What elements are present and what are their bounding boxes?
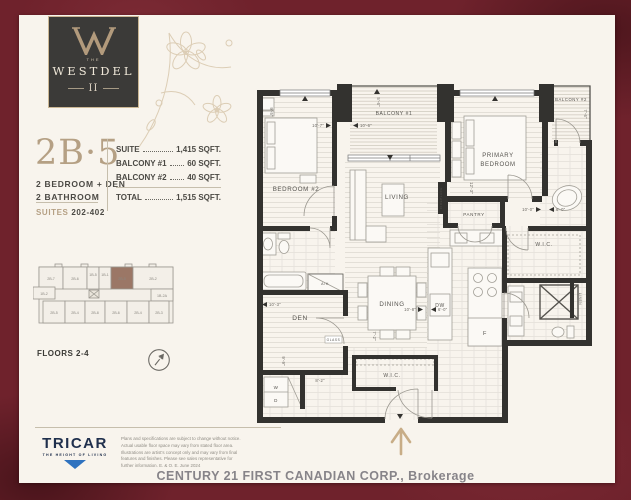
page-background: THE WESTDEL II 2B·5 2 BEDROOM + DEN 2 BA…: [19, 15, 615, 483]
unit-type-line1: 2 BEDROOM + DEN: [36, 178, 126, 191]
sofa: [350, 170, 366, 240]
room-label-wic-entry: W.I.C.: [383, 373, 400, 379]
keyplan-unit-label: 1B-5: [89, 273, 97, 277]
room-label-wic-primary: W.I.C.: [535, 242, 552, 248]
room-label-den: DEN: [292, 315, 308, 322]
room-label-linen: LINEN: [578, 293, 582, 305]
label-dryer: D: [274, 398, 278, 403]
room-label-air-handler: A/H: [321, 282, 329, 286]
toilet-ensuite: [552, 327, 564, 337]
room-label-dining: DINING: [379, 301, 404, 308]
keyplan-unit-label: 2B-3: [155, 311, 163, 315]
spec-value: 40 SQFT.: [187, 173, 221, 182]
dim-bedroom2-h: 9'-5": [269, 107, 274, 117]
label-fridge: F: [483, 331, 487, 337]
keyplan-unit-label: 2B-7: [47, 277, 55, 281]
label-washer: W: [274, 385, 279, 390]
dim-pantry-h: 12'-3": [469, 182, 474, 194]
entry-arrow-icon: [392, 429, 410, 454]
keyplan-unit-label: 2B-8: [91, 311, 99, 315]
logo-the: THE: [87, 57, 101, 62]
logo-numeral-row: II: [68, 83, 120, 94]
suites-range: SUITES 202-402: [36, 208, 105, 217]
dim-dining-w2: 6'-0": [438, 307, 448, 312]
toilet-bath2: [279, 241, 289, 254]
floor-plan: BEDROOM #2 BALCONY #1 LIVING PRIMARY BED…: [240, 78, 616, 468]
room-label-living: LIVING: [385, 194, 409, 201]
room-label-balcony1: BALCONY #1: [376, 111, 413, 117]
keyplan-unit-label: 2B-4: [134, 311, 142, 315]
keyplan-unit-label: 2B-4: [71, 311, 79, 315]
spec-value: 1,415 SQFT.: [176, 145, 221, 154]
room-label-fireplace: FIREPLACE: [439, 187, 443, 209]
dim-wic2-h: 7'-2": [372, 331, 377, 341]
tricar-logo: TRICAR THE HEIGHT OF LIVING: [35, 435, 115, 469]
floors-label: FLOORS 2-4: [37, 349, 89, 358]
suite-specs: SUITE 1,415 SQFT. BALCONY #1 60 SQFT. BA…: [116, 145, 221, 207]
tricar-triangle-icon: [64, 460, 86, 469]
suites-label: SUITES: [36, 208, 69, 217]
logo-numeral: II: [89, 83, 99, 94]
compass-icon: N: [146, 347, 172, 373]
room-label-pantry: PANTRY: [463, 212, 484, 217]
balcony1-deck: [350, 86, 437, 156]
keyplan-unit-label: 1B-2: [40, 292, 48, 296]
unit-type: 2 BEDROOM + DEN 2 BATHROOM: [36, 178, 126, 204]
dim-bedroom2-w: 10'-7": [312, 123, 324, 128]
dim-den-h: 9'-9": [281, 356, 286, 366]
suites-value: 202-402: [71, 208, 105, 217]
divider: [107, 139, 108, 211]
keyplan-unit-label: 1B-1: [101, 273, 109, 277]
divider: [36, 202, 98, 203]
dim-den-w: 10'-3": [269, 302, 281, 307]
spec-label: BALCONY #2: [116, 173, 167, 182]
brokerage-watermark: CENTURY 21 FIRST CANADIAN CORP., Brokera…: [0, 469, 631, 483]
dim-balcony2-w: 7'-6": [583, 109, 588, 119]
keyplan-unit-label: 2B-2: [149, 277, 157, 281]
dim-primary-nook: 6'-0": [556, 207, 566, 212]
spec-value: 60 SQFT.: [187, 159, 221, 168]
tricar-tagline: THE HEIGHT OF LIVING: [35, 453, 115, 457]
spec-label: TOTAL: [116, 193, 142, 202]
westdel-logo: THE WESTDEL II: [48, 16, 139, 108]
dim-hall-w: 8'-2": [315, 378, 325, 383]
building-key-plan: 2B-7 2B-6 1B-5 1B-1 2B-5 2B-2 1B-2 1B-2A…: [33, 261, 181, 347]
spec-label: BALCONY #1: [116, 159, 167, 168]
dim-dining-w: 10'-8": [404, 307, 416, 312]
dim-balcony1-w: 10'-6": [360, 123, 372, 128]
room-label-primary-1: PRIMARY: [482, 153, 513, 159]
floral-decoration-illustration: [131, 15, 251, 155]
room-label-bedroom2: BEDROOM #2: [273, 186, 320, 193]
spec-value: 1,515 SQFT.: [176, 193, 221, 202]
westdel-monogram-icon: [72, 25, 116, 55]
tricar-name: TRICAR: [35, 435, 115, 452]
keyplan-unit-label: 2B-6: [71, 277, 79, 281]
keyplan-unit-label: 2B-5: [50, 311, 58, 315]
logo-name: WESTDEL: [52, 64, 134, 78]
keyplan-highlighted-unit-label: 2B-5: [118, 277, 126, 281]
spec-row: BALCONY #2 40 SQFT.: [116, 173, 221, 182]
spec-row: SUITE 1,415 SQFT.: [116, 145, 221, 154]
room-label-primary-2: BEDROOM: [480, 162, 515, 168]
keyplan-unit-label: 1B-2A: [157, 294, 168, 298]
spec-total-row: TOTAL 1,515 SQFT.: [116, 187, 221, 202]
dim-balcony1-h: 5'-6": [376, 97, 381, 107]
label-glass-door: GLASS: [327, 338, 341, 342]
dim-primary-w: 10'-0": [522, 207, 534, 212]
spec-label: SUITE: [116, 145, 140, 154]
keyplan-unit-label: 2B-6: [112, 311, 120, 315]
spec-row: BALCONY #1 60 SQFT.: [116, 159, 221, 168]
brochure-page: { "logo": {"the": "THE", "name": "WESTDE…: [0, 0, 631, 500]
blossom-icon: [202, 96, 232, 125]
room-label-balcony2: BALCONY #2: [555, 97, 587, 102]
